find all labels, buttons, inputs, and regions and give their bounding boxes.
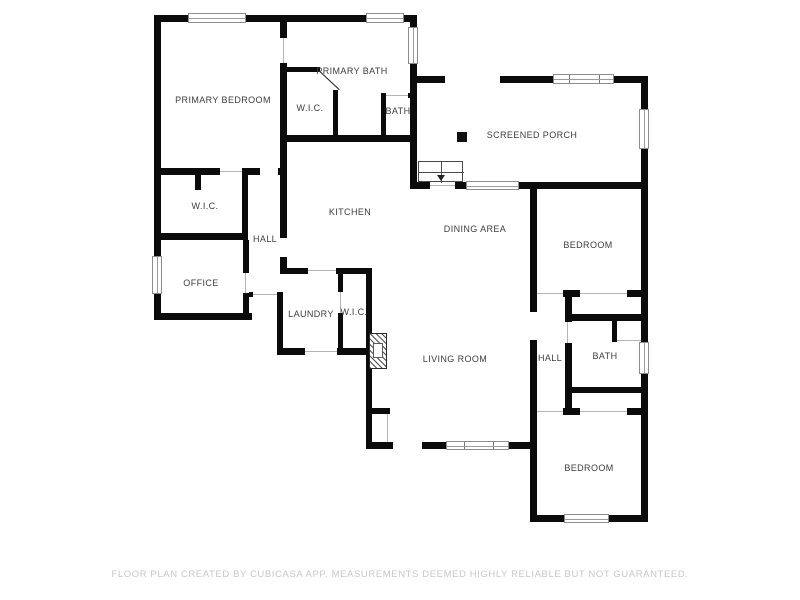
porch-post [457,132,467,142]
wall [565,387,642,393]
door-opening [308,270,336,271]
room-label-dining-area: DINING AREA [444,224,506,234]
wall [195,175,201,190]
door-opening [253,294,277,295]
door-opening [537,293,563,294]
window [639,109,649,149]
floor-plan: PRIMARY BEDROOM PRIMARY BATH W.I.C. BATH… [0,0,800,600]
wall [627,290,641,297]
wall [287,67,320,72]
room-label-hall-right: HALL [538,353,562,363]
door-opening [260,168,278,175]
front-door-opening [393,442,422,449]
closet-opening [387,414,388,442]
door-opening [243,273,249,293]
door-opening [386,95,408,96]
door-opening [567,322,568,343]
wall [333,90,338,140]
window-pane-divider [569,75,570,83]
room-label-primary-bedroom: PRIMARY BEDROOM [175,95,271,105]
room-label-kitchen: KITCHEN [329,207,371,217]
room-label-primary-bath: PRIMARY BATH [316,66,387,76]
room-label-screened-porch: SCREENED PORCH [487,130,578,140]
door-opening [430,185,455,186]
window [564,514,609,523]
wall [530,443,537,522]
room-label-bath-right: BATH [593,351,618,361]
wall [154,313,252,320]
footer-disclaimer: FLOOR PLAN CREATED BY CUBICASA APP. MEAS… [0,569,800,580]
wall [277,297,283,350]
window-pane-divider [599,75,600,83]
door-opening [245,273,246,293]
wall [565,343,572,415]
room-label-wic-left: W.I.C. [192,201,219,211]
wall [565,314,642,321]
door-opening [280,238,287,257]
window [408,27,418,64]
wall [381,93,386,140]
wall [408,93,413,98]
room-label-bedroom-bottom: BEDROOM [564,463,613,473]
fireplace-firebox [373,343,383,358]
door-opening [308,268,336,274]
wall [563,408,580,415]
wall [627,408,641,415]
stair-direction-arrow-icon [437,175,445,181]
wall [242,168,248,235]
door-opening [220,171,242,172]
window [446,441,509,450]
door-opening [305,351,337,352]
door-opening [283,38,284,63]
room-label-living-room: LIVING ROOM [423,354,487,364]
window [639,342,649,374]
wall [280,135,417,142]
wall [154,233,248,240]
door-opening [537,411,563,412]
closet-opening [617,340,641,341]
room-label-bath-primary: BATH [386,106,411,116]
window [188,13,246,23]
door-opening [580,411,627,412]
room-label-bedroom-right: BEDROOM [563,240,612,250]
room-label-office: OFFICE [183,278,218,288]
room-label-laundry: LAUNDRY [288,309,334,319]
window-pane-divider [464,442,465,449]
wall [612,321,617,342]
window [553,74,614,84]
window [466,181,519,190]
porch-screen-opening [445,76,500,83]
room-label-wic-laundry: W.I.C. [341,307,368,317]
door-opening [530,312,537,340]
room-label-hall-left: HALL [253,234,277,244]
window [152,256,162,294]
window-pane-divider [493,442,494,449]
window [366,13,404,23]
door-opening [580,293,627,294]
room-label-wic-primary: W.I.C. [297,103,324,113]
